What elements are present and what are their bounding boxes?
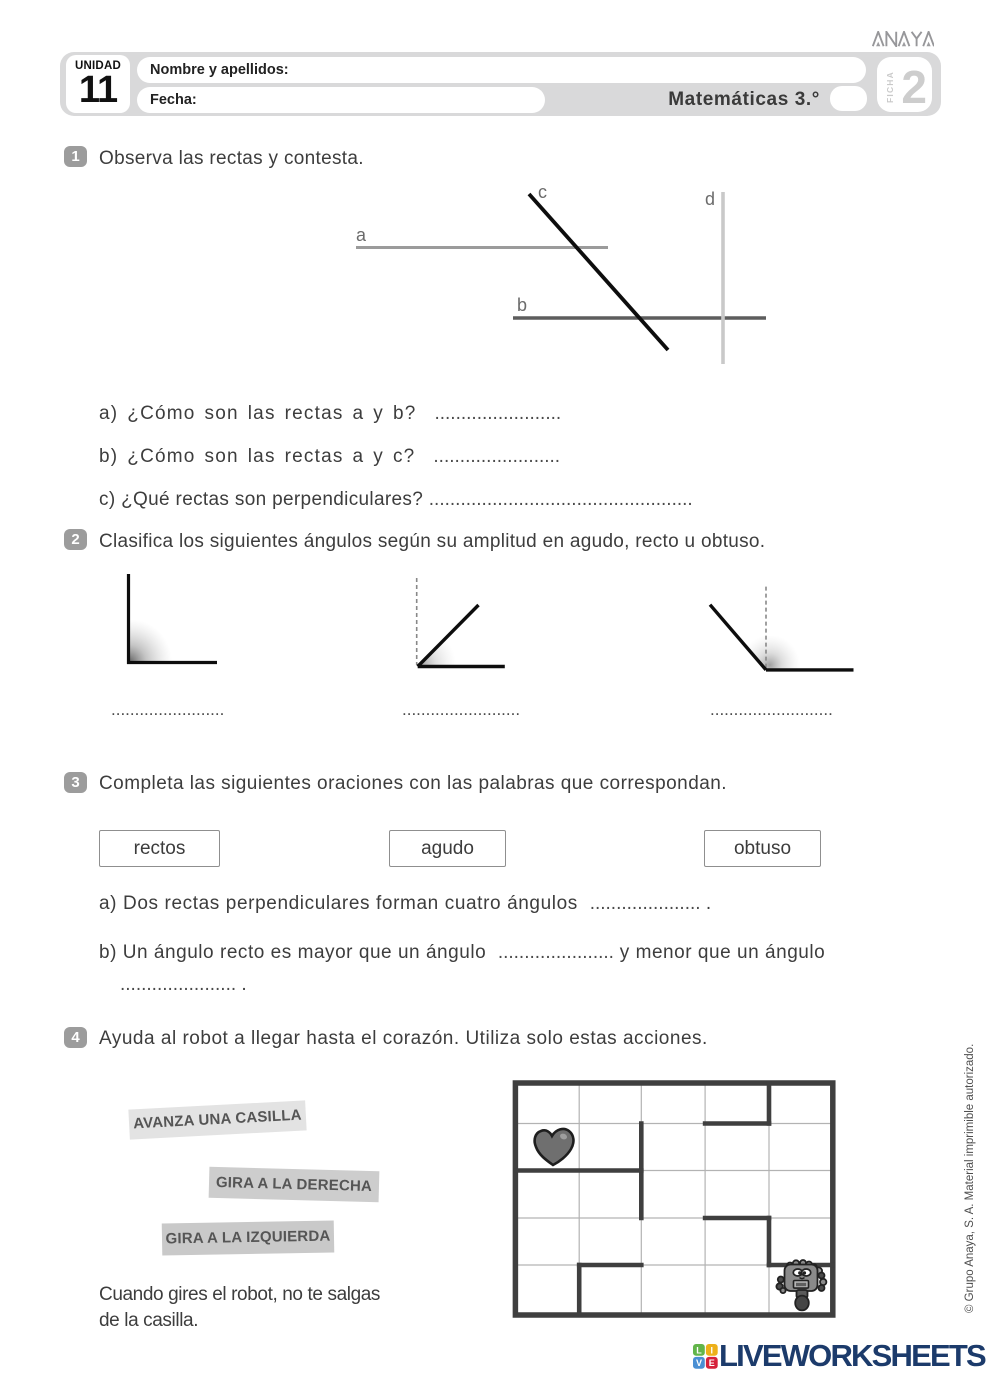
- svg-text:d: d: [705, 189, 715, 209]
- svg-text:V: V: [696, 1358, 702, 1368]
- svg-text:I: I: [711, 1345, 714, 1355]
- svg-text:E: E: [709, 1358, 715, 1368]
- svg-text:c: c: [538, 182, 547, 202]
- svg-text:a: a: [356, 225, 367, 245]
- svg-text:b: b: [517, 295, 527, 315]
- svg-text:L: L: [696, 1345, 702, 1355]
